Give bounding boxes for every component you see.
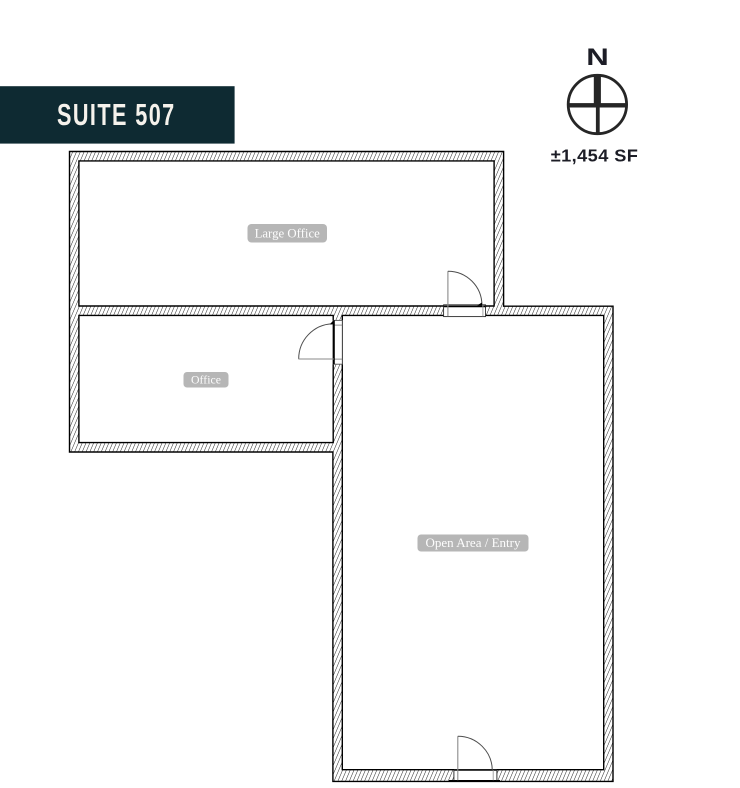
svg-text:Open Area / Entry: Open Area / Entry <box>426 535 521 550</box>
svg-text:Office: Office <box>191 373 221 387</box>
svg-text:Large Office: Large Office <box>255 226 321 240</box>
svg-text:SUITE 507: SUITE 507 <box>57 97 176 132</box>
svg-text:±1,454 SF: ±1,454 SF <box>551 146 639 166</box>
svg-text:N: N <box>586 43 609 70</box>
